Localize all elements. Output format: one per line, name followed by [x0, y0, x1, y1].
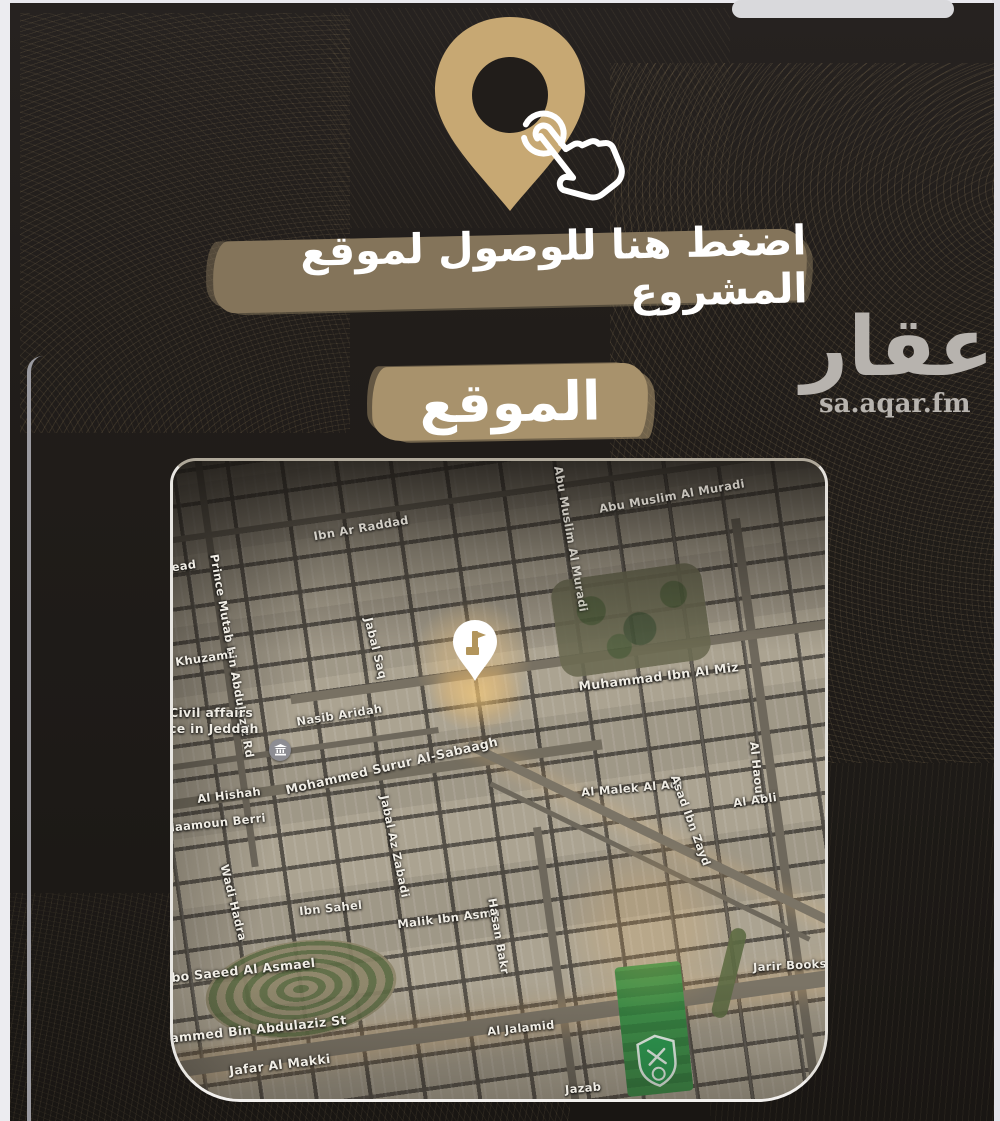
viewer-chip [732, 0, 954, 18]
aqar-watermark: عقار sa.aqar.fm [819, 309, 994, 419]
screenshot-frame-line [27, 356, 77, 1121]
football-field [614, 961, 693, 1097]
poster: اضغط هنا للوصول لموقع المشروع الموقع عقا… [10, 3, 994, 1121]
poi-label: Civil affairs [170, 705, 253, 720]
section-title-text: الموقع [419, 369, 601, 435]
road [533, 827, 594, 1102]
cta-banner[interactable]: اضغط هنا للوصول لموقع المشروع [212, 228, 807, 313]
aqar-logo-text: عقار [819, 309, 994, 387]
map-card[interactable]: Ibn Ar Raddad Abu Muslim Al Muradi Abu M… [170, 458, 828, 1102]
museum-icon [269, 739, 291, 761]
road [731, 518, 828, 1102]
section-title-banner: الموقع [371, 363, 648, 442]
road [170, 458, 828, 564]
cta-text: اضغط هنا للوصول لموقع المشروع [212, 216, 808, 325]
screenshot-root: { "poster": { "bg_color": "#211d1a", "ac… [0, 0, 1000, 1121]
tap-hand-icon[interactable] [505, 103, 635, 218]
map-marker-icon[interactable] [451, 619, 499, 683]
poi-label: ce in Jeddah [170, 721, 259, 736]
club-badge-icon [634, 1032, 681, 1090]
aqar-domain-text: sa.aqar.fm [819, 389, 994, 419]
